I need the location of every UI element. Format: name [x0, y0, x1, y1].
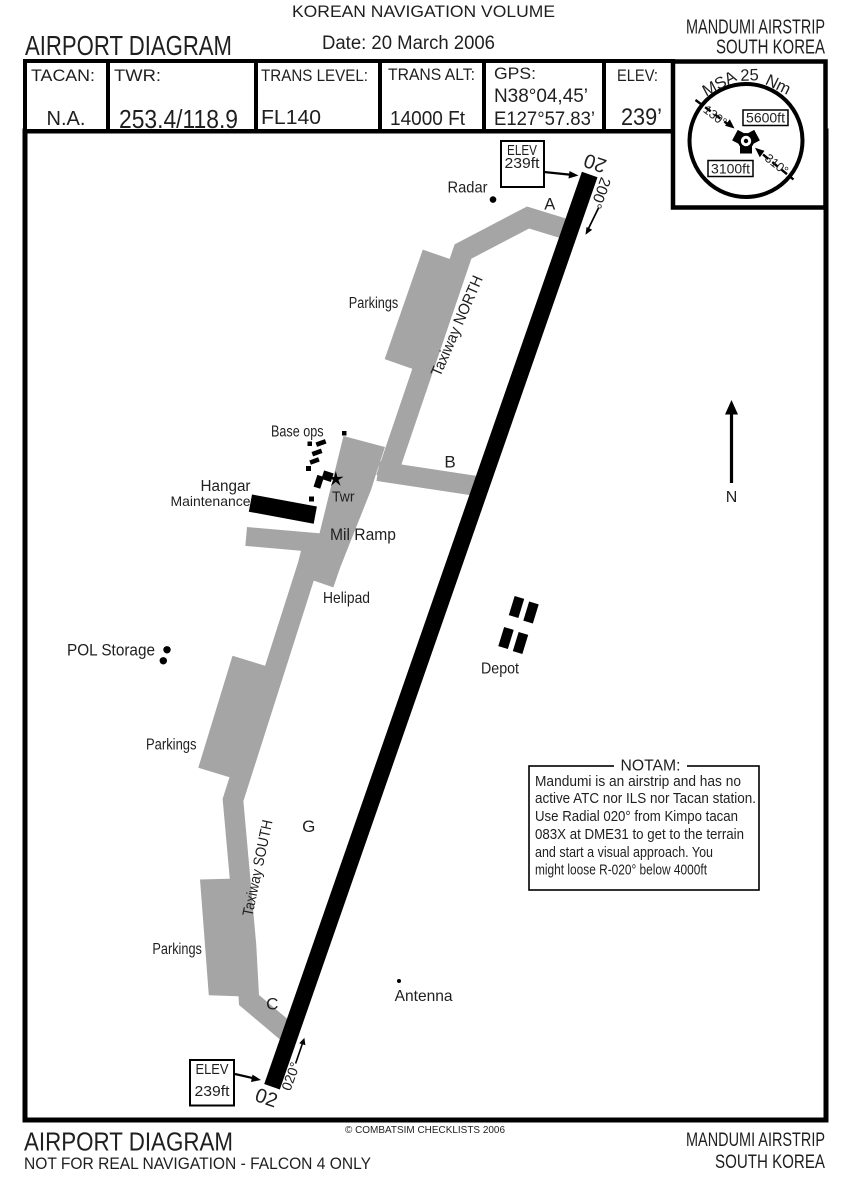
svg-text:B: B [444, 453, 455, 472]
svg-text:N.A.: N.A. [47, 108, 86, 130]
svg-text:KOREAN NAVIGATION VOLUME: KOREAN NAVIGATION VOLUME [292, 2, 555, 21]
svg-text:239ft: 239ft [505, 155, 541, 172]
svg-text:© COMBATSIM CHECKLISTS 2006: © COMBATSIM CHECKLISTS 2006 [345, 1124, 505, 1136]
svg-text:TRANS ALT:: TRANS ALT: [388, 65, 475, 84]
svg-text:POL Storage: POL Storage [67, 642, 155, 660]
svg-text:3100ft: 3100ft [711, 161, 750, 177]
svg-text:239’: 239’ [621, 104, 662, 131]
svg-text:14000 Ft: 14000 Ft [390, 108, 465, 130]
svg-text:Use Radial 020° from Kimpo tac: Use Radial 020° from Kimpo tacan [535, 808, 738, 825]
svg-text:253.4/118.9: 253.4/118.9 [119, 104, 238, 134]
svg-text:GPS:: GPS: [494, 64, 536, 83]
svg-text:NOTAM:: NOTAM: [621, 758, 681, 775]
svg-text:239ft: 239ft [195, 1083, 231, 1100]
svg-text:C: C [266, 994, 278, 1013]
svg-text:FL140: FL140 [261, 107, 321, 129]
svg-text:Parkings: Parkings [349, 295, 399, 312]
svg-text:ELEV: ELEV [196, 1061, 229, 1078]
svg-text:Mandumi is an airstrip and has: Mandumi is an airstrip and has no [535, 773, 741, 790]
svg-text:TWR:: TWR: [114, 66, 161, 85]
svg-text:N38°04,45’: N38°04,45’ [494, 86, 588, 107]
svg-text:Date: 20 March 2006: Date: 20 March 2006 [322, 33, 495, 54]
svg-text:might loose R-020° below 4000f: might loose R-020° below 4000ft [535, 862, 708, 879]
svg-text:083X at DME31 to get to the te: 083X at DME31 to get to the terrain [535, 826, 744, 843]
svg-text:G: G [302, 817, 315, 836]
svg-text:Base ops: Base ops [271, 424, 324, 441]
svg-text:Twr: Twr [332, 489, 355, 506]
svg-text:E127°57.83’: E127°57.83’ [494, 109, 595, 130]
svg-text:Helipad: Helipad [323, 590, 370, 607]
svg-text:MANDUMI AIRSTRIP: MANDUMI AIRSTRIP [686, 17, 825, 39]
svg-text:A: A [544, 196, 555, 214]
svg-text:SOUTH KOREA: SOUTH KOREA [716, 37, 825, 59]
svg-text:Maintenance: Maintenance [171, 493, 251, 509]
svg-text:25: 25 [740, 66, 759, 85]
svg-text:TRANS LEVEL:: TRANS LEVEL: [261, 66, 368, 85]
svg-text:Radar: Radar [448, 180, 489, 197]
svg-text:AIRPORT DIAGRAM: AIRPORT DIAGRAM [25, 30, 232, 61]
svg-text:N: N [726, 489, 738, 506]
svg-text:Parkings: Parkings [146, 737, 197, 754]
svg-text:NOT FOR REAL NAVIGATION - FALC: NOT FOR REAL NAVIGATION - FALCON 4 ONLY [24, 1155, 371, 1173]
svg-text:Antenna: Antenna [395, 988, 453, 1005]
svg-text:Mil Ramp: Mil Ramp [330, 525, 396, 544]
svg-text:5600ft: 5600ft [746, 110, 785, 126]
svg-text:Parkings: Parkings [152, 941, 202, 958]
svg-text:AIRPORT DIAGRAM: AIRPORT DIAGRAM [24, 1127, 233, 1157]
svg-text:ELEV:: ELEV: [617, 66, 658, 85]
svg-text:SOUTH KOREA: SOUTH KOREA [715, 1151, 825, 1173]
svg-text:MANDUMI AIRSTRIP: MANDUMI AIRSTRIP [686, 1129, 825, 1151]
svg-text:Depot: Depot [481, 661, 519, 678]
svg-text:active ATC nor ILS nor Tacan s: active ATC nor ILS nor Tacan station. [535, 790, 756, 807]
svg-text:and start a visual approach.: and start a visual approach. You [535, 844, 713, 861]
svg-text:TACAN:: TACAN: [31, 66, 95, 85]
